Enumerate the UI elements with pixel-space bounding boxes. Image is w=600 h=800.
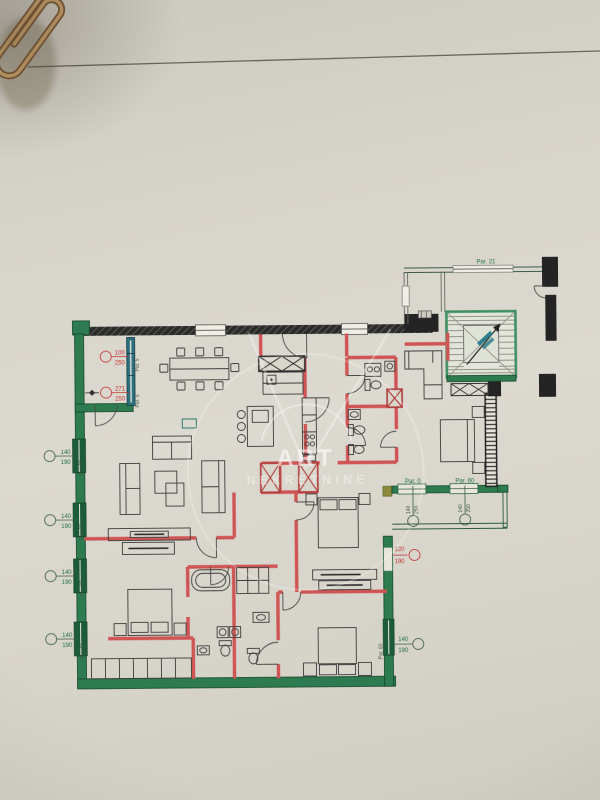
dim-height: 190 <box>395 559 406 565</box>
ladder-wall <box>485 393 497 486</box>
dim-height: 250 <box>115 397 126 403</box>
watermark-title: ART <box>276 445 335 473</box>
bed-middle <box>306 493 370 548</box>
wall-label: Par. 60 <box>79 460 85 476</box>
dim-width: 140 <box>398 637 409 643</box>
bed-bottom-right <box>303 627 371 676</box>
bay-glazing-wall <box>127 337 136 405</box>
bay-bottom-wall <box>75 403 133 412</box>
annex-wall-1 <box>542 257 558 287</box>
document-edge-line <box>28 51 600 67</box>
dim-width: 140 <box>62 570 73 576</box>
dim-height: 190 <box>61 524 72 530</box>
dim-height: 250 <box>466 504 472 513</box>
wall-label: Par. 60 <box>80 643 86 659</box>
dim-height: 190 <box>62 580 73 586</box>
stairwell <box>446 311 516 382</box>
dim-terrace-door: 120 190 <box>392 547 420 565</box>
dim-width: 140 <box>458 504 464 513</box>
level-marker <box>85 390 99 396</box>
terrace-label-a: Par. 0 <box>405 479 421 485</box>
wardrobe-top-right <box>405 351 442 399</box>
dim-width: 140 <box>61 450 72 456</box>
dim-width: 140 <box>61 514 72 520</box>
dim-width: 271 <box>115 387 126 393</box>
wall-label: Par. 5 <box>135 394 141 407</box>
annex-wall-2 <box>545 295 556 341</box>
wall-label: Par. 60 <box>79 524 85 540</box>
annex-wall-4 <box>488 380 501 396</box>
dim-width: 100 <box>115 351 126 357</box>
meter-box <box>418 311 431 318</box>
terrace-label-b: Par. 60 <box>455 478 475 484</box>
dim-height: 190 <box>61 460 72 466</box>
wc-top <box>348 409 365 454</box>
plant-box <box>182 419 196 428</box>
sofa-set <box>119 436 225 515</box>
shaft-strip <box>451 383 488 395</box>
kitchen-island <box>247 406 273 446</box>
tv-cabinet-living <box>108 528 190 555</box>
photo-paper: 140 190 Par. 60 140 190 Par. 60 140 190 … <box>0 0 600 800</box>
bed-bottom-left <box>114 589 186 636</box>
watermark-subtitle: NEKRETNINE <box>247 472 369 487</box>
parapet-label: Par. 21 <box>476 259 496 265</box>
annex-door <box>534 286 545 298</box>
annex-wall-3 <box>539 374 556 397</box>
wall-label: Par. 60 <box>378 643 384 659</box>
wall-label: Par. 5 <box>135 358 141 371</box>
dim-width: 140 <box>62 633 73 639</box>
dim-height: 250 <box>115 361 126 367</box>
wardrobe-bottom <box>91 658 191 679</box>
dim-width: 140 <box>406 505 412 514</box>
wall-label: Par. 60 <box>80 580 86 596</box>
terrace-parapet <box>383 483 508 529</box>
dim-height: 190 <box>62 643 73 649</box>
floor-plan: 140 190 Par. 60 140 190 Par. 60 140 190 … <box>42 257 561 689</box>
top-wall <box>82 324 432 336</box>
bed-top-right <box>440 406 485 473</box>
dim-height: 190 <box>398 648 409 654</box>
left-wall-corner <box>72 321 89 335</box>
